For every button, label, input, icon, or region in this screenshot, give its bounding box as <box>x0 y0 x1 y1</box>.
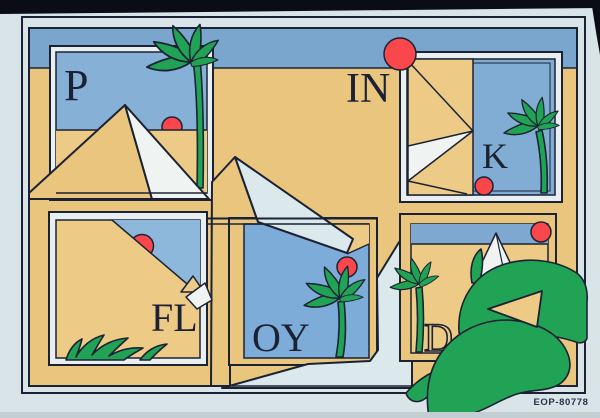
panel-p: P <box>29 23 224 200</box>
panel-k: K <box>400 52 562 202</box>
photo-edge-bottom <box>0 412 600 418</box>
letter-p: P <box>64 61 88 110</box>
panel-fl: FL <box>49 212 207 365</box>
sun-icon <box>531 222 551 242</box>
catalog-number: EOP-80778 <box>533 397 588 408</box>
letter-k: K <box>482 136 508 176</box>
palm-trunk <box>416 287 424 352</box>
letter-oy: OY <box>252 315 310 360</box>
sun-icon <box>475 177 493 195</box>
panel-d-sky <box>411 224 548 244</box>
pyramids-artwork: P K <box>0 0 600 418</box>
sideways-pyramid <box>408 59 473 195</box>
postcard-photo: P K <box>0 0 600 418</box>
letter-in: IN <box>346 66 390 112</box>
